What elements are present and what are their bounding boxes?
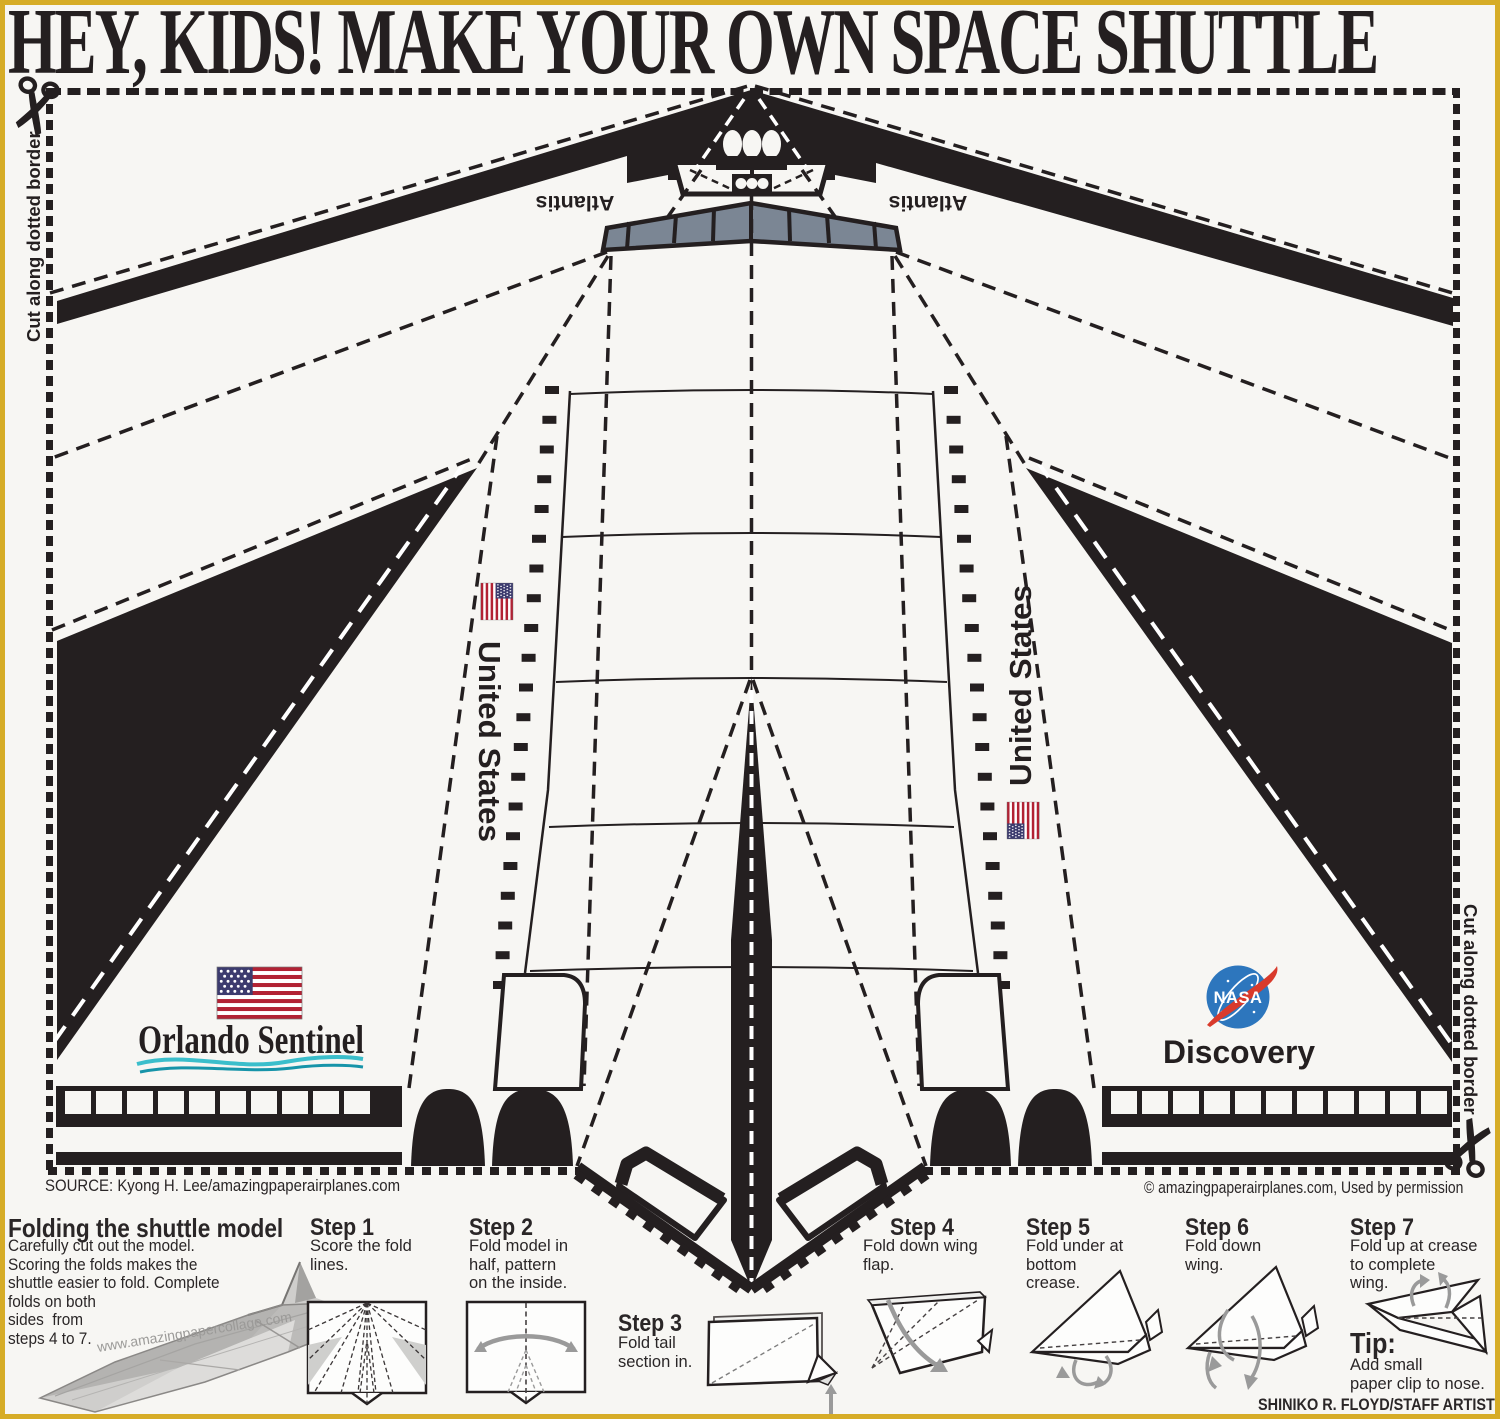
svg-text:United States: United States <box>472 641 507 842</box>
svg-text:Cut along dotted border: Cut along dotted border <box>23 131 44 342</box>
svg-text:Atlantis: Atlantis <box>889 191 968 215</box>
svg-text:Cut along dotted border: Cut along dotted border <box>1460 904 1481 1115</box>
svg-text:Discovery: Discovery <box>1163 1034 1315 1070</box>
svg-text:United States: United States <box>1003 585 1038 786</box>
svg-text:Atlantis: Atlantis <box>536 191 615 215</box>
svg-text:NASA: NASA <box>1214 989 1263 1007</box>
